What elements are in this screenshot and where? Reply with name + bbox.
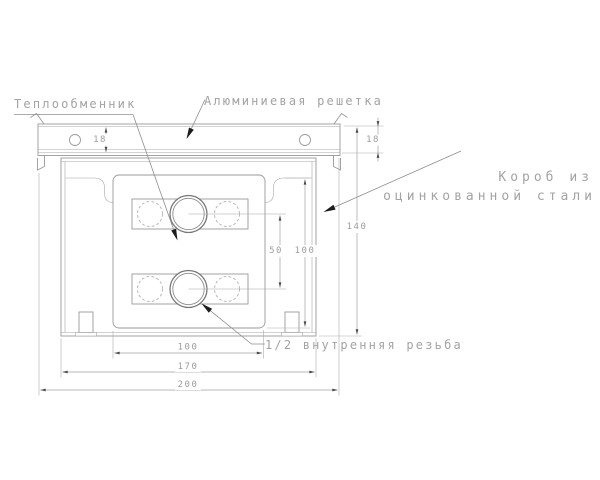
callout-steel-box: Короб из оцинкованной стали <box>324 151 597 212</box>
dim-text-18-right: 18 <box>366 135 380 145</box>
grille-tab-top-right <box>334 114 348 125</box>
technical-drawing: 18 18 140 100 50 100 170 <box>0 0 600 480</box>
dim-overall-height: 140 <box>344 128 370 335</box>
label-box-line1: Короб из <box>498 170 593 185</box>
box-foot-right <box>282 312 303 336</box>
dim-box-width: 170 <box>63 362 315 372</box>
grille-hole-right <box>300 135 311 146</box>
grille-tab-bottom-right <box>334 156 341 171</box>
dim-text-170: 170 <box>178 362 199 372</box>
label-thread: 1/2 внутренняя резьба <box>265 338 463 352</box>
label-heat-exchanger: Теплообменник <box>14 97 137 111</box>
dim-text-100-vert: 100 <box>295 246 316 256</box>
dim-text-50: 50 <box>269 246 283 256</box>
grille-tab-top-left <box>31 114 45 125</box>
dim-overall-width: 200 <box>41 380 338 390</box>
dim-grille-height-right: 18 <box>364 118 382 162</box>
grille-tab-bottom-left <box>38 156 45 171</box>
grille-hole-left <box>70 135 81 146</box>
label-box-line2: оцинкованной стали <box>383 189 596 204</box>
dim-text-100-bottom: 100 <box>178 343 199 353</box>
leader-arrow-box <box>324 205 336 212</box>
dim-core-width: 100 <box>115 343 263 354</box>
dim-text-200: 200 <box>178 380 199 390</box>
dim-text-18-left: 18 <box>93 135 107 145</box>
label-aluminum-grille: Алюминиевая решетка <box>204 94 383 108</box>
drawing-canvas: 18 18 140 100 50 100 170 <box>0 0 600 480</box>
dim-text-140: 140 <box>347 222 368 232</box>
heat-exchanger-core <box>113 175 286 328</box>
box-foot-left <box>76 312 97 336</box>
